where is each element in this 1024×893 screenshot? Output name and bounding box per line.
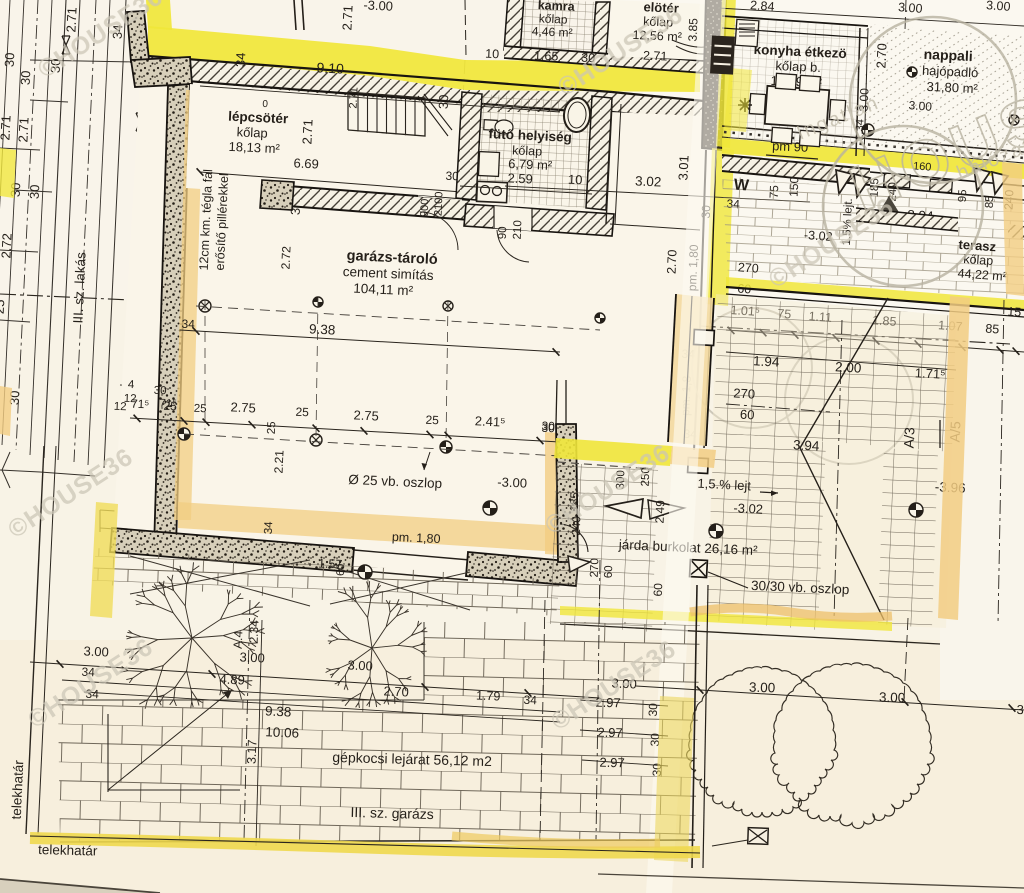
svg-text:2.34: 2.34 (246, 620, 261, 644)
svg-text:3.00: 3.00 (908, 98, 933, 114)
svg-text:25: 25 (266, 421, 279, 434)
svg-text:270: 270 (737, 260, 759, 275)
svg-text:hajópadló: hajópadló (922, 63, 979, 81)
svg-text:2.21: 2.21 (271, 450, 286, 474)
svg-text:25: 25 (425, 413, 439, 428)
svg-text:3.00: 3.00 (986, 0, 1011, 14)
svg-text:18,13 m²: 18,13 m² (228, 139, 281, 156)
svg-text:60: 60 (603, 565, 616, 578)
svg-text:-3.00: -3.00 (497, 474, 527, 490)
svg-text:2.70: 2.70 (664, 249, 679, 274)
svg-text:3.00: 3.00 (898, 0, 923, 16)
svg-text:2.59: 2.59 (507, 170, 533, 186)
svg-text:85: 85 (984, 195, 997, 208)
svg-text:4: 4 (128, 379, 136, 391)
svg-text:W: W (733, 177, 750, 195)
svg-text:270: 270 (733, 385, 755, 401)
svg-text:3.00: 3.00 (239, 649, 265, 665)
svg-text:2.84: 2.84 (750, 0, 775, 14)
svg-text:30: 30 (153, 385, 166, 398)
svg-text:2.71: 2.71 (63, 7, 79, 33)
svg-text:2.71: 2.71 (339, 5, 355, 31)
svg-text:3: 3 (1016, 702, 1024, 717)
svg-text:A.4: A.4 (231, 630, 246, 649)
svg-text:30: 30 (18, 70, 34, 85)
svg-text:30: 30 (2, 52, 18, 67)
svg-text:60: 60 (335, 563, 348, 576)
svg-text:10.06: 10.06 (265, 724, 299, 741)
svg-text:1,5.% lejt: 1,5.% lejt (697, 476, 752, 494)
svg-text:15: 15 (1007, 305, 1022, 320)
svg-text:34: 34 (233, 52, 249, 67)
svg-text:10: 10 (485, 47, 500, 62)
svg-text:telekhatár: telekhatár (9, 759, 27, 819)
svg-text:0: 0 (262, 99, 268, 110)
svg-text:A/3: A/3 (901, 427, 918, 449)
svg-text:nappali: nappali (923, 46, 973, 64)
svg-text:30: 30 (27, 184, 43, 199)
svg-text:2.41⁵: 2.41⁵ (475, 413, 506, 429)
svg-text:3.17: 3.17 (244, 739, 259, 764)
svg-text:25: 25 (193, 403, 206, 416)
svg-text:4,46 m²: 4,46 m² (532, 24, 573, 40)
svg-text:3.00: 3.00 (749, 680, 776, 696)
svg-text:60: 60 (740, 407, 755, 423)
svg-text:2.72: 2.72 (0, 233, 15, 259)
svg-text:10: 10 (568, 172, 583, 188)
svg-text:9.10: 9.10 (316, 59, 344, 76)
svg-text:90: 90 (497, 226, 510, 239)
svg-text:6.69: 6.69 (293, 155, 319, 171)
svg-text:3.00: 3.00 (347, 657, 373, 673)
svg-text:2.71: 2.71 (15, 117, 31, 143)
svg-text:210: 210 (512, 220, 525, 240)
svg-text:1.79: 1.79 (476, 688, 501, 703)
svg-text:25: 25 (295, 405, 309, 420)
svg-text:3.02: 3.02 (635, 173, 662, 189)
svg-text:pm. 1,80: pm. 1,80 (392, 530, 441, 546)
svg-text:30: 30 (436, 94, 452, 109)
svg-text:3.01: 3.01 (675, 155, 691, 181)
svg-text:12: 12 (123, 393, 136, 406)
svg-text:9.38: 9.38 (309, 321, 336, 337)
svg-text:4.89: 4.89 (219, 671, 245, 687)
svg-text:30: 30 (541, 421, 555, 436)
svg-text:1.65: 1.65 (534, 48, 559, 63)
svg-text:31,80 m²: 31,80 m² (926, 79, 979, 96)
svg-text:71⁵: 71⁵ (159, 398, 177, 411)
svg-text:34: 34 (263, 521, 276, 535)
svg-text:85: 85 (985, 322, 1000, 337)
svg-text:2.70: 2.70 (383, 683, 409, 699)
svg-text:104,11 m²: 104,11 m² (353, 281, 414, 299)
svg-text:2.71: 2.71 (0, 115, 14, 141)
svg-text:34: 34 (523, 693, 537, 708)
svg-text:-3.00: -3.00 (363, 0, 393, 14)
svg-text:2.71: 2.71 (299, 119, 315, 145)
svg-text:-3.02: -3.02 (733, 500, 763, 517)
svg-text:2.72: 2.72 (278, 246, 293, 270)
svg-text:95: 95 (957, 189, 970, 202)
svg-text:25: 25 (0, 299, 7, 314)
svg-text:9.38: 9.38 (265, 703, 292, 719)
svg-text:2.75: 2.75 (230, 399, 256, 415)
svg-text:900: 900 (419, 198, 432, 217)
svg-text:3.94: 3.94 (793, 437, 821, 453)
svg-text:2.75: 2.75 (353, 407, 379, 423)
svg-text:III. sz. garázs: III. sz. garázs (350, 804, 434, 822)
svg-text:34: 34 (181, 317, 195, 332)
svg-text:kőlap: kőlap (236, 124, 268, 140)
svg-text:2100: 2100 (432, 191, 445, 216)
svg-text:2.70: 2.70 (873, 43, 889, 69)
svg-text:3.00: 3.00 (879, 690, 906, 706)
